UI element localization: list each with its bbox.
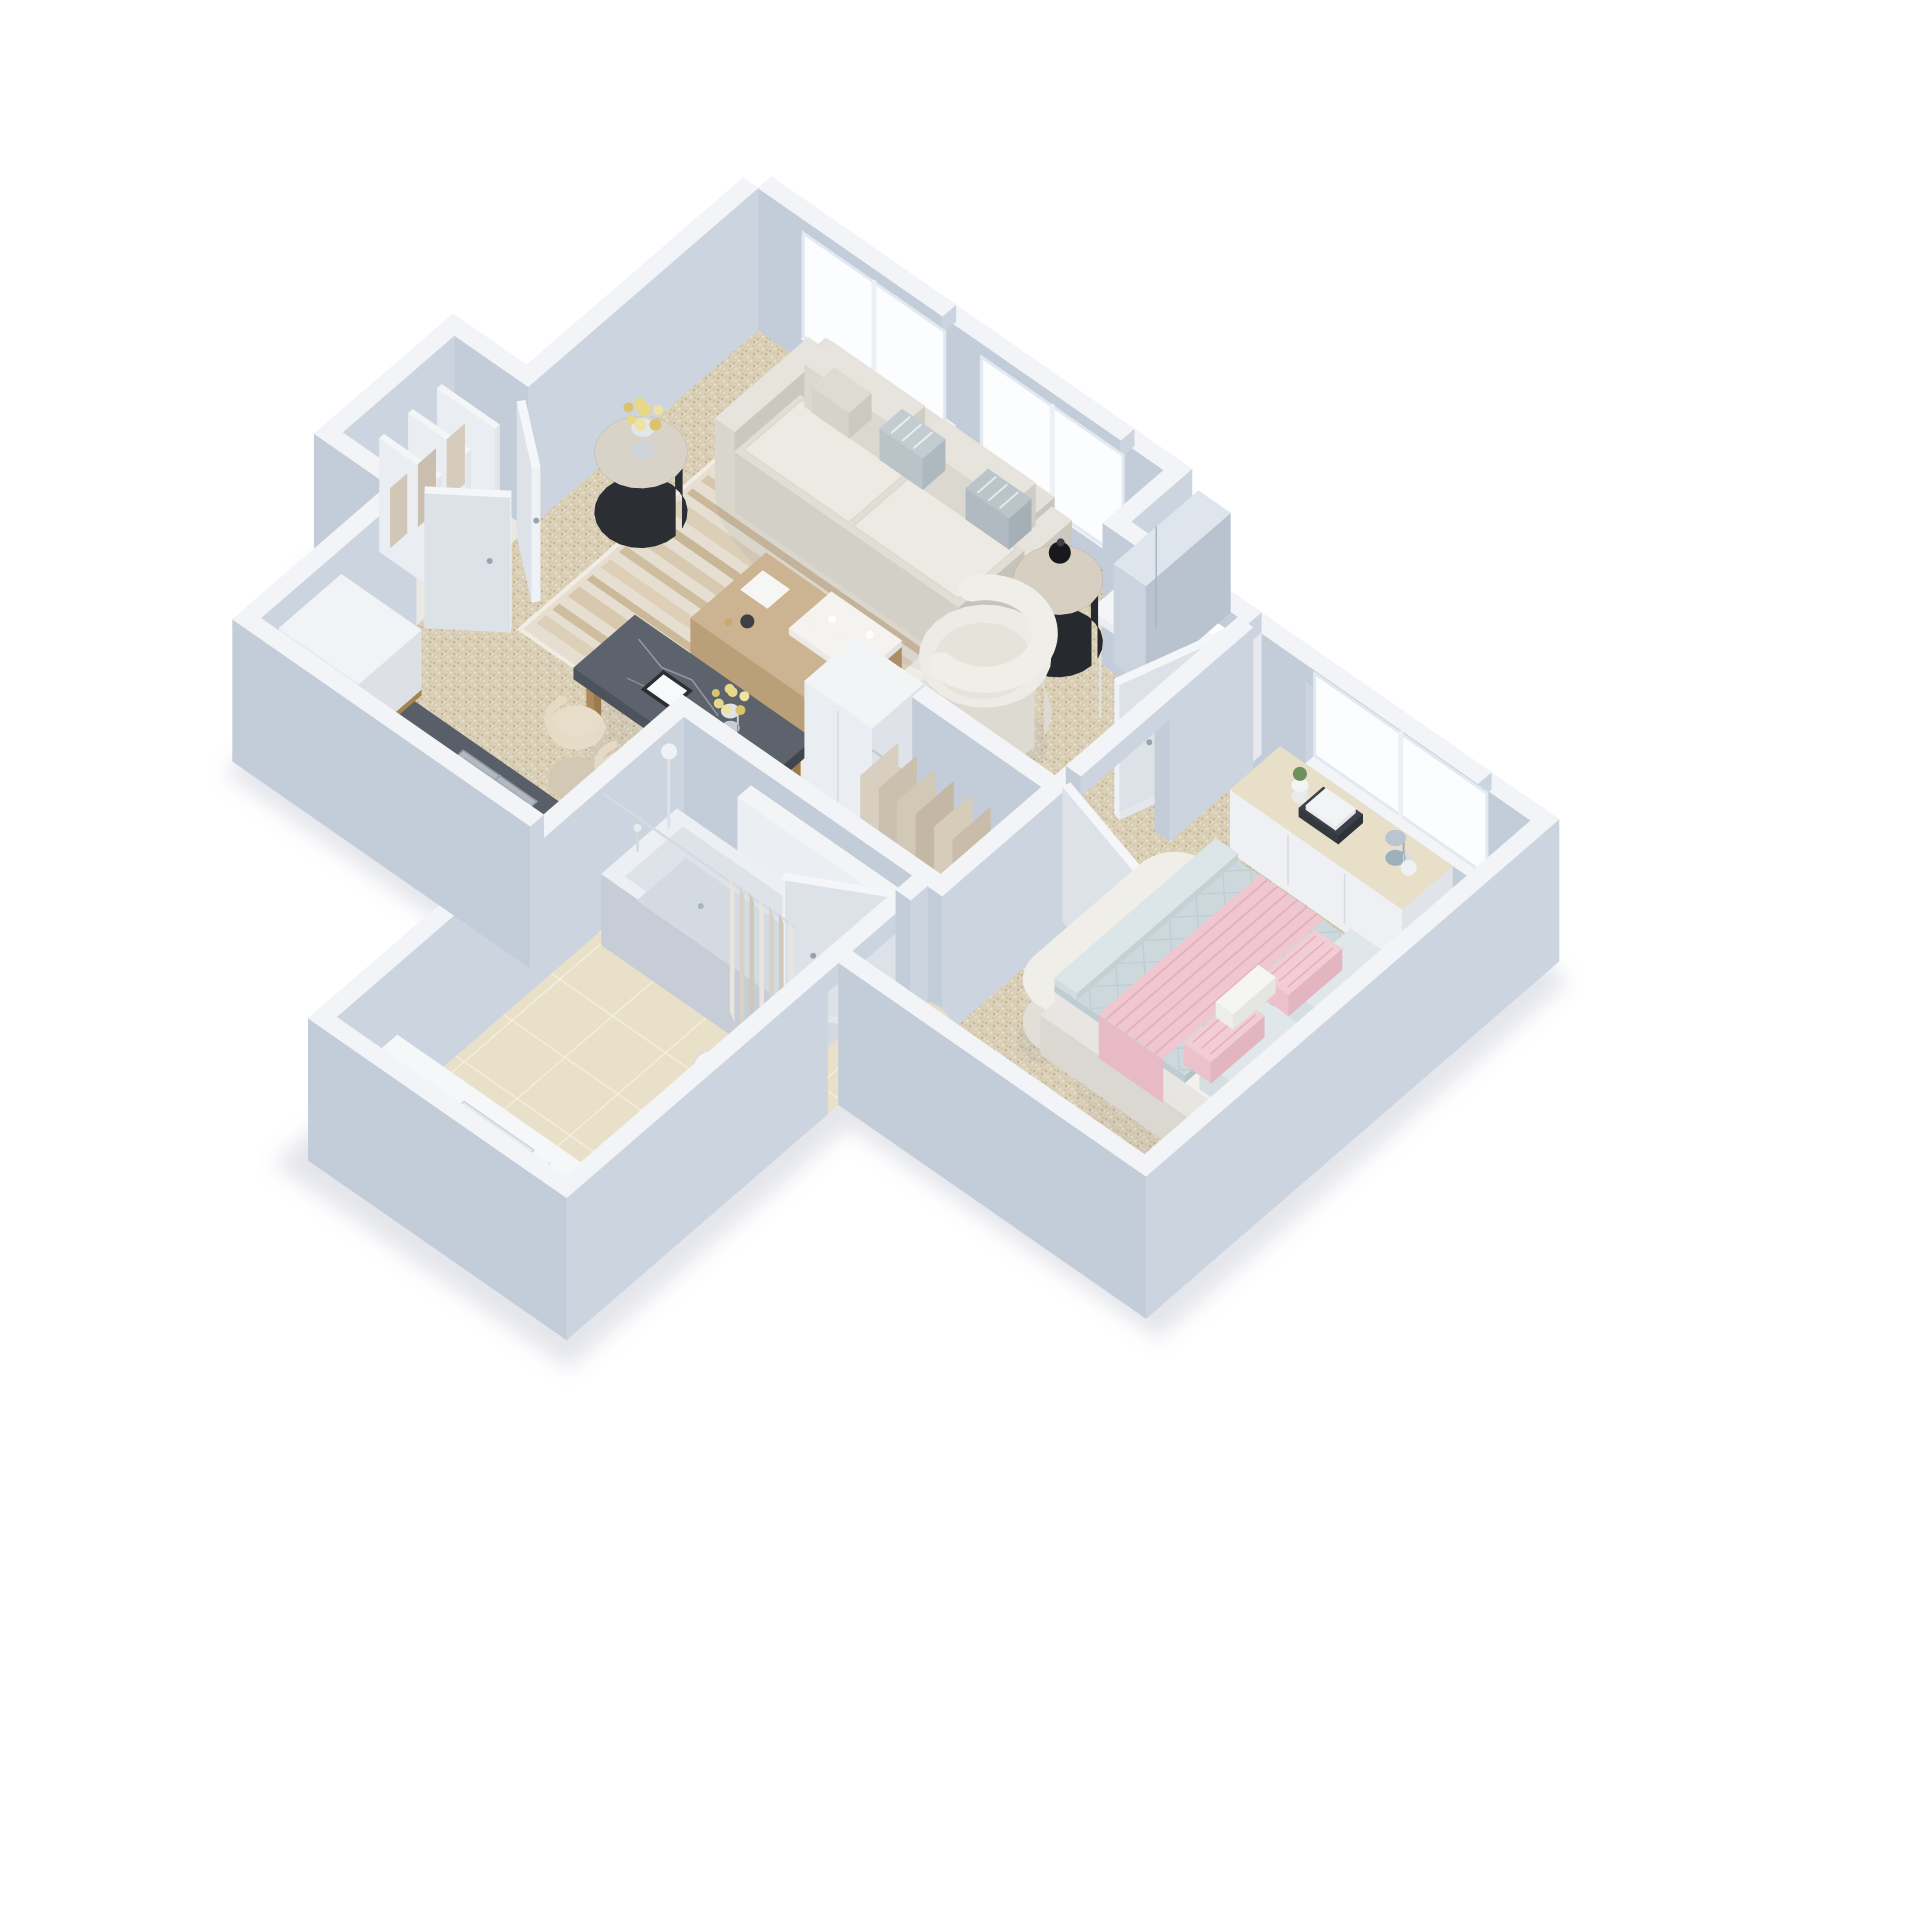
floor-plan-canvas — [0, 0, 1920, 1920]
floor-plan-render — [0, 0, 1920, 1920]
